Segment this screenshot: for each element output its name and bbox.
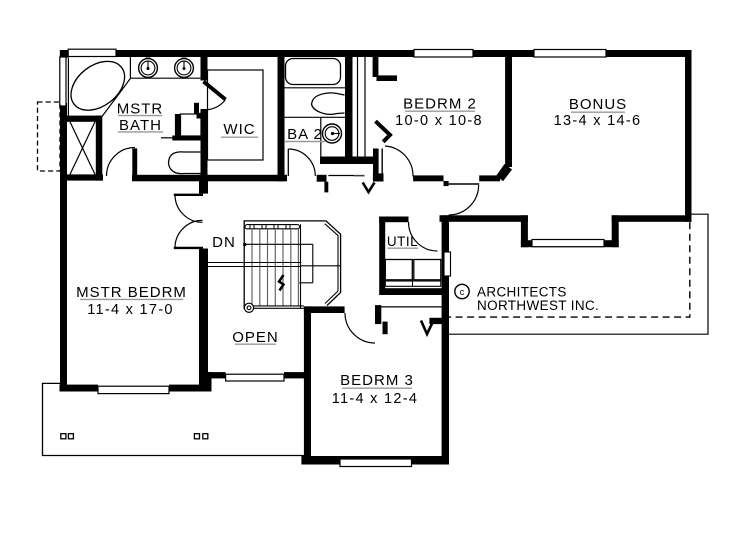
svg-text:OPEN: OPEN [232,329,279,346]
svg-text:UTIL: UTIL [387,234,418,249]
svg-text:BONUS: BONUS [569,96,627,113]
svg-text:WIC: WIC [223,121,255,138]
svg-text:10-0 x 10-8: 10-0 x 10-8 [395,113,483,129]
svg-text:BEDRM 3: BEDRM 3 [340,372,414,389]
svg-text:c: c [460,287,465,297]
svg-text:13-4 x 14-6: 13-4 x 14-6 [554,113,642,129]
svg-text:NORTHWEST INC.: NORTHWEST INC. [477,298,599,313]
svg-text:BEDRM 2: BEDRM 2 [403,96,477,113]
svg-text:DN: DN [212,234,236,251]
svg-text:11-4 x 12-4: 11-4 x 12-4 [332,391,419,407]
svg-text:MSTR BEDRM: MSTR BEDRM [76,284,187,301]
svg-text:BA 2: BA 2 [287,126,323,143]
svg-text:11-4 x 17-0: 11-4 x 17-0 [87,302,174,318]
